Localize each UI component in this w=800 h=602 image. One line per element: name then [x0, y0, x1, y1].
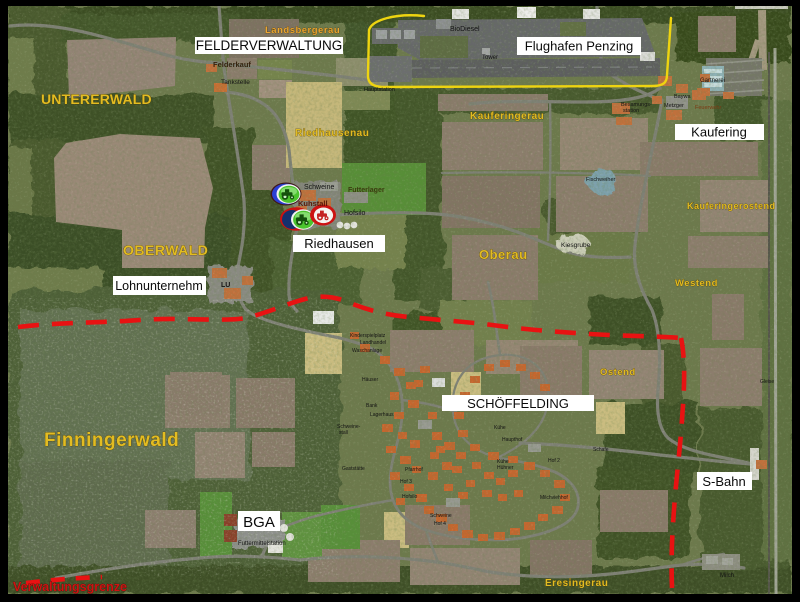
svg-text:Kinderspielplatz: Kinderspielplatz — [350, 333, 386, 339]
svg-text:FELDERVERWALTUNG: FELDERVERWALTUNG — [196, 38, 343, 53]
svg-text:Bank: Bank — [366, 403, 378, 409]
svg-text:Pfarrhof: Pfarrhof — [405, 467, 423, 473]
svg-text:Baywa: Baywa — [674, 94, 691, 100]
svg-text:Oberau: Oberau — [479, 247, 528, 262]
svg-text:Kühe: Kühe — [494, 425, 506, 431]
svg-text:Häuser: Häuser — [362, 377, 378, 383]
svg-text:Tankstelle: Tankstelle — [221, 79, 250, 86]
svg-text:Gleise: Gleise — [760, 379, 774, 385]
svg-text:Metzger: Metzger — [664, 103, 684, 109]
svg-text:Feuerwehr: Feuerwehr — [695, 105, 721, 111]
svg-text:Finningerwald: Finningerwald — [44, 430, 179, 451]
svg-text:S-Bahn: S-Bahn — [702, 474, 745, 489]
svg-text:Kauferingerau: Kauferingerau — [470, 111, 544, 122]
svg-text:Hof 4: Hof 4 — [434, 521, 446, 527]
svg-text:Kuhstall: Kuhstall — [298, 199, 328, 208]
svg-text:BGA: BGA — [243, 514, 275, 531]
svg-text:SCHÖFFELDING: SCHÖFFELDING — [467, 396, 569, 411]
svg-text:station: station — [623, 108, 639, 114]
svg-text:Landhandel: Landhandel — [360, 340, 386, 346]
svg-text:Hofsilo: Hofsilo — [344, 210, 366, 217]
svg-text:Futterlager: Futterlager — [348, 187, 385, 194]
svg-text:Hof 3: Hof 3 — [400, 479, 412, 485]
svg-text:Schafe: Schafe — [593, 447, 609, 453]
svg-text:Hofsilo: Hofsilo — [402, 494, 418, 500]
svg-text:Milchviehhof: Milchviehhof — [540, 495, 568, 501]
svg-text:Lagerhaus: Lagerhaus — [370, 412, 394, 418]
svg-text:Kauferingerostend: Kauferingerostend — [687, 201, 776, 211]
svg-text:Waschanlage: Waschanlage — [352, 348, 382, 354]
svg-text:Westend: Westend — [675, 278, 718, 289]
svg-text:Schweine: Schweine — [430, 513, 452, 519]
svg-text:Eresingerau: Eresingerau — [545, 578, 608, 589]
svg-text:Riedhausen: Riedhausen — [304, 236, 373, 251]
svg-text:Lohnunternehm: Lohnunternehm — [115, 279, 203, 293]
svg-text:Flughafen Penzing: Flughafen Penzing — [525, 39, 633, 54]
svg-text:Ostend: Ostend — [600, 367, 636, 378]
svg-text:Landsbergerau: Landsbergerau — [265, 25, 340, 36]
svg-text:Hauptstation: Hauptstation — [364, 87, 395, 93]
svg-text:Tower: Tower — [482, 55, 498, 61]
svg-text:LU: LU — [221, 282, 230, 289]
svg-text:OBERWALD: OBERWALD — [123, 242, 208, 258]
svg-text:Milch: Milch — [720, 573, 734, 579]
svg-text:Hof 2: Hof 2 — [548, 458, 560, 464]
svg-text:Riedhausenau: Riedhausenau — [295, 128, 369, 139]
svg-text:Felderkauf: Felderkauf — [213, 60, 251, 69]
svg-text:Hühner: Hühner — [497, 465, 514, 471]
svg-text:stall: stall — [339, 430, 348, 436]
svg-text:Futtermittelstation: Futtermittelstation — [238, 541, 286, 547]
svg-text:UNTERERWALD: UNTERERWALD — [41, 91, 152, 107]
svg-text:Kaufering: Kaufering — [691, 125, 747, 140]
svg-text:BioDiesel: BioDiesel — [450, 26, 480, 33]
svg-text:Haupthof: Haupthof — [502, 437, 523, 443]
svg-text:Fischweiher: Fischweiher — [586, 177, 616, 183]
svg-text:Verwaltungsgrenze: Verwaltungsgrenze — [13, 580, 127, 594]
svg-text:Gaststätte: Gaststätte — [342, 466, 365, 472]
svg-text:Schweine: Schweine — [304, 184, 334, 191]
svg-text:Kiesgrube: Kiesgrube — [561, 242, 591, 249]
svg-text:Gartnerei: Gartnerei — [700, 78, 725, 84]
